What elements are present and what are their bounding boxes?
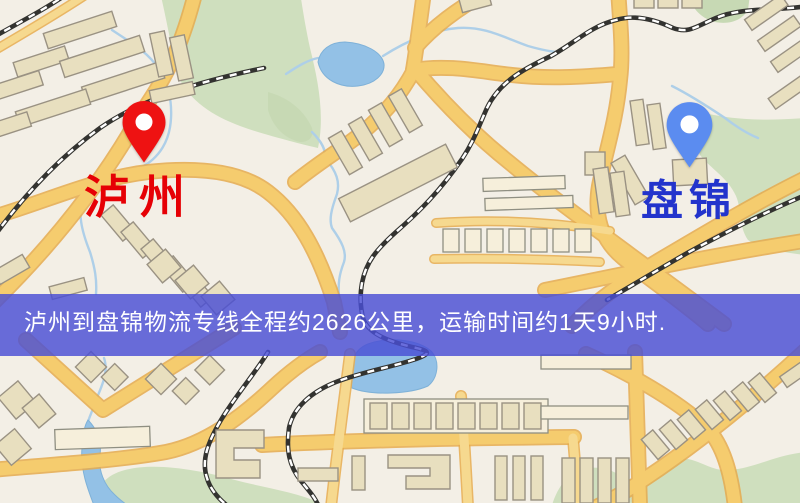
- logistics-route-map: 泸州 盘锦 泸州到盘锦物流专线全程约2626公里，运输时间约1天9小时.: [0, 0, 800, 503]
- origin-pin-icon[interactable]: [121, 100, 167, 164]
- route-info-text: 泸州到盘锦物流专线全程约2626公里，运输时间约1天9小时.: [24, 309, 666, 337]
- pin-hole: [680, 115, 698, 133]
- destination-city-label: 盘锦: [641, 180, 737, 222]
- origin-city-label: 泸州: [84, 174, 194, 220]
- map-background: [0, 0, 800, 503]
- pin-hole: [136, 114, 153, 131]
- destination-pin-icon[interactable]: [665, 101, 714, 169]
- pin-body: [123, 101, 166, 163]
- pin-body: [667, 102, 713, 167]
- route-info-banner: 泸州到盘锦物流专线全程约2626公里，运输时间约1天9小时.: [0, 294, 800, 356]
